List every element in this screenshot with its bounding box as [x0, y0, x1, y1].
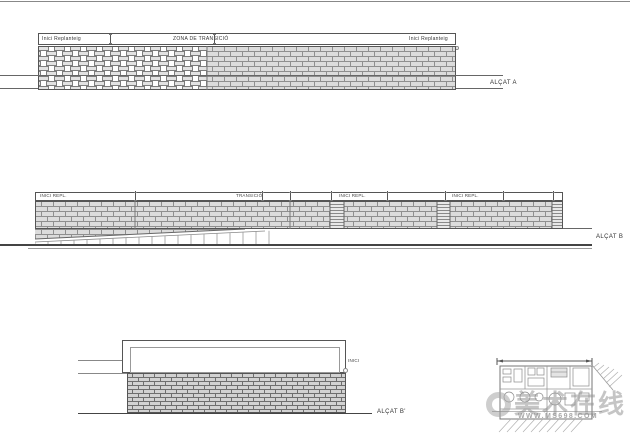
alcat-b-seg3-label: INICI REPL. — [339, 194, 366, 199]
alcat-b-wall-base-extension — [563, 228, 592, 229]
alcat-b2-title: ALÇAT B' — [377, 409, 406, 415]
watermark-underline — [492, 411, 602, 412]
alcat-b2-ground-line — [78, 413, 372, 414]
station-tick — [110, 33, 111, 45]
alcat-b-header-bar — [35, 192, 563, 201]
alcat-a-header-bar — [38, 33, 456, 45]
alcat-b-wall-drawing — [35, 201, 563, 229]
watermark-logo-icon — [486, 392, 511, 417]
alcat-a-header-left-label: Inici Replanteig — [42, 37, 81, 42]
alcat-b-seg1-label: INICI REPL. — [40, 194, 67, 199]
alcat-a-title: ALÇAT A — [490, 80, 517, 86]
alcat-b2-left-line-2 — [78, 373, 127, 374]
alcat-b-seg4-label: INICI REPL. — [452, 194, 479, 199]
alcat-a-ground-line — [0, 75, 503, 76]
survey-point-marker — [343, 368, 348, 373]
alcat-b-ground-line — [0, 244, 592, 246]
alcat-a-header-center-label: ZONA DE TRANSICIÓ — [173, 37, 229, 42]
station-tick — [214, 33, 215, 45]
alcat-b-title: ALÇAT B — [596, 234, 623, 240]
alcat-b-seg2-label: TRANSICIÓ — [236, 194, 262, 199]
alcat-b-ground-line-2 — [28, 248, 592, 249]
watermark: 美术在线 WWW.MS698.COM — [486, 384, 630, 430]
alcat-a-base-extension-left — [0, 88, 38, 89]
alcat-a-base-extension-right — [456, 88, 503, 89]
alcat-b2-note: INICI — [348, 359, 359, 364]
alcat-b2-cap-inner-frame — [130, 347, 340, 373]
watermark-url-text: WWW.MS698.COM — [518, 413, 598, 420]
alcat-a-wall-drawing — [38, 46, 456, 90]
sheet-top-rule — [0, 1, 630, 2]
alcat-a-header-right-label: Inici Replanteig — [409, 37, 448, 42]
drawing-sheet: Inici Replanteig ZONA DE TRANSICIÓ Inici… — [0, 0, 630, 439]
alcat-b2-brick-base-drawing — [127, 373, 346, 413]
alcat-b2-left-line-1 — [78, 360, 122, 361]
